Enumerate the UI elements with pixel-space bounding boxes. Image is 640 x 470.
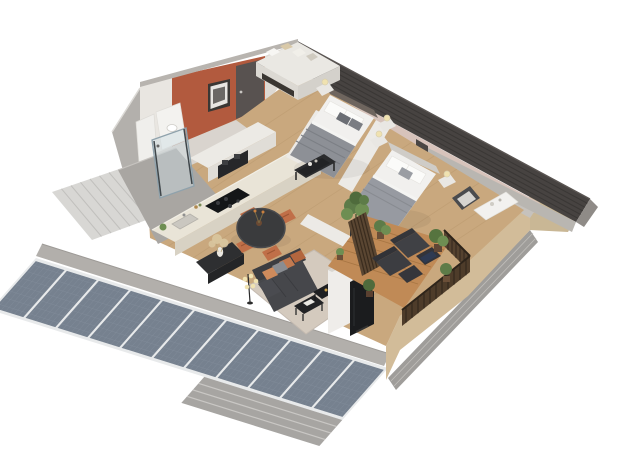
table-lamp — [322, 79, 328, 85]
shower-head — [157, 145, 160, 148]
coffee-machine — [234, 154, 240, 159]
pampas-grass — [209, 241, 216, 248]
table-lamp — [444, 171, 450, 177]
table-decor — [325, 289, 328, 292]
wash-basin — [167, 125, 177, 132]
table-lamp — [376, 131, 382, 137]
desk-item-2 — [499, 199, 502, 202]
door-handle — [240, 91, 243, 94]
foliage — [359, 195, 369, 205]
built-in-oven — [222, 160, 228, 165]
floorplan-svg — [0, 0, 640, 470]
table-lamp — [384, 115, 390, 121]
desk-item — [490, 202, 494, 206]
foliage — [341, 208, 353, 220]
shower — [152, 128, 194, 198]
floorplan-render — [0, 0, 640, 470]
counter-plant — [160, 224, 167, 231]
pampas-grass — [220, 239, 229, 248]
faucet — [183, 214, 186, 217]
counter-bottle-2 — [199, 204, 202, 207]
counter-bottle — [194, 205, 198, 209]
